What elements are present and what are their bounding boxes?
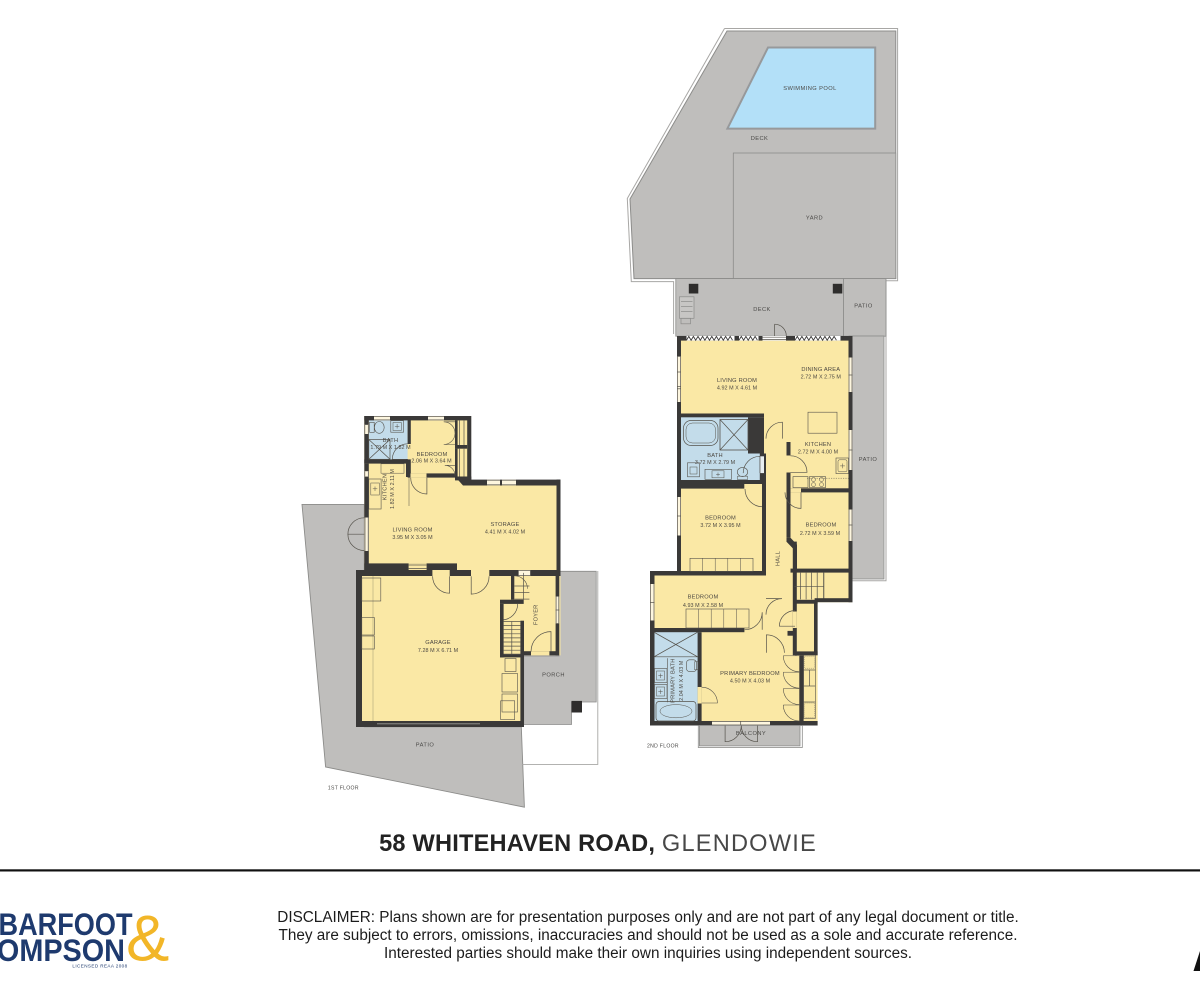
svg-text:2.06 M X 3.64 M: 2.06 M X 3.64 M	[411, 459, 452, 465]
svg-text:2ND FLOOR: 2ND FLOOR	[647, 744, 679, 750]
svg-text:7.28 M X 6.71 M: 7.28 M X 6.71 M	[418, 648, 459, 654]
svg-text:GARAGE: GARAGE	[425, 640, 451, 646]
svg-text:DINING AREA: DINING AREA	[801, 367, 840, 373]
svg-text:DECK: DECK	[751, 136, 769, 142]
svg-text:PATIO: PATIO	[859, 457, 878, 463]
svg-text:STORAGE: STORAGE	[490, 522, 519, 528]
svg-text:FOYER: FOYER	[533, 605, 539, 626]
svg-text:1ST FLOOR: 1ST FLOOR	[328, 786, 359, 792]
svg-text:2.72 M X 3.59 M: 2.72 M X 3.59 M	[800, 531, 841, 537]
svg-text:BATH: BATH	[383, 438, 399, 444]
svg-text:PATIO: PATIO	[854, 304, 873, 310]
svg-text:1.82 M X 2.11 M: 1.82 M X 2.11 M	[390, 469, 396, 509]
svg-text:4.41 M X 4.02 M: 4.41 M X 4.02 M	[485, 530, 526, 536]
svg-text:They are subject to errors, om: They are subject to errors, omissions, i…	[279, 927, 1018, 944]
svg-text:3.72 M X 3.95 M: 3.72 M X 3.95 M	[700, 523, 741, 529]
svg-text:BEDROOM: BEDROOM	[806, 523, 837, 529]
svg-text:HALL: HALL	[776, 551, 782, 566]
svg-text:BEDROOM: BEDROOM	[417, 452, 448, 458]
svg-text:BATH: BATH	[707, 453, 723, 459]
svg-text:PRIMARY BATH: PRIMARY BATH	[671, 658, 677, 702]
svg-text:2.04 M X 4.03 M: 2.04 M X 4.03 M	[679, 660, 685, 701]
svg-text:1.79 M X 1.82 M: 1.79 M X 1.82 M	[370, 445, 411, 451]
svg-text:3.72 M X 2.79 M: 3.72 M X 2.79 M	[695, 460, 736, 466]
svg-text:&: &	[126, 902, 169, 975]
svg-text:2.72 M X 2.75 M: 2.72 M X 2.75 M	[801, 375, 842, 381]
svg-text:BEDROOM: BEDROOM	[688, 595, 719, 601]
svg-text:3.95 M X 3.05 M: 3.95 M X 3.05 M	[392, 535, 433, 541]
svg-text:2.72 M X 4.00 M: 2.72 M X 4.00 M	[798, 450, 839, 456]
svg-text:DISCLAIMER: Plans shown are fo: DISCLAIMER: Plans shown are for presenta…	[277, 909, 1018, 926]
svg-text:LICENSED REAA 2008: LICENSED REAA 2008	[72, 964, 127, 969]
svg-text:DECK: DECK	[753, 307, 771, 313]
svg-text:LIVING ROOM: LIVING ROOM	[717, 378, 757, 384]
svg-text:BEDROOM: BEDROOM	[705, 515, 736, 521]
svg-text:PORCH: PORCH	[542, 673, 565, 679]
svg-text:YARD: YARD	[806, 216, 823, 222]
svg-text:KITCHEN: KITCHEN	[383, 474, 389, 500]
svg-text:SWIMMING POOL: SWIMMING POOL	[783, 86, 837, 92]
svg-text:LIVING ROOM: LIVING ROOM	[392, 527, 432, 533]
svg-text:4.93 M X 2.58 M: 4.93 M X 2.58 M	[683, 603, 724, 609]
svg-text:Interested parties should make: Interested parties should make their own…	[384, 945, 912, 962]
svg-text:PATIO: PATIO	[416, 742, 435, 748]
svg-text:4.92 M X 4.61 M: 4.92 M X 4.61 M	[717, 386, 758, 392]
svg-text:KITCHEN: KITCHEN	[805, 442, 831, 448]
svg-text:4.50 M X 4.03 M: 4.50 M X 4.03 M	[730, 679, 771, 685]
svg-text:58 WHITEHAVEN ROAD, GLENDOWIE: 58 WHITEHAVEN ROAD, GLENDOWIE	[379, 831, 817, 857]
svg-text:PRIMARY BEDROOM: PRIMARY BEDROOM	[720, 671, 780, 677]
